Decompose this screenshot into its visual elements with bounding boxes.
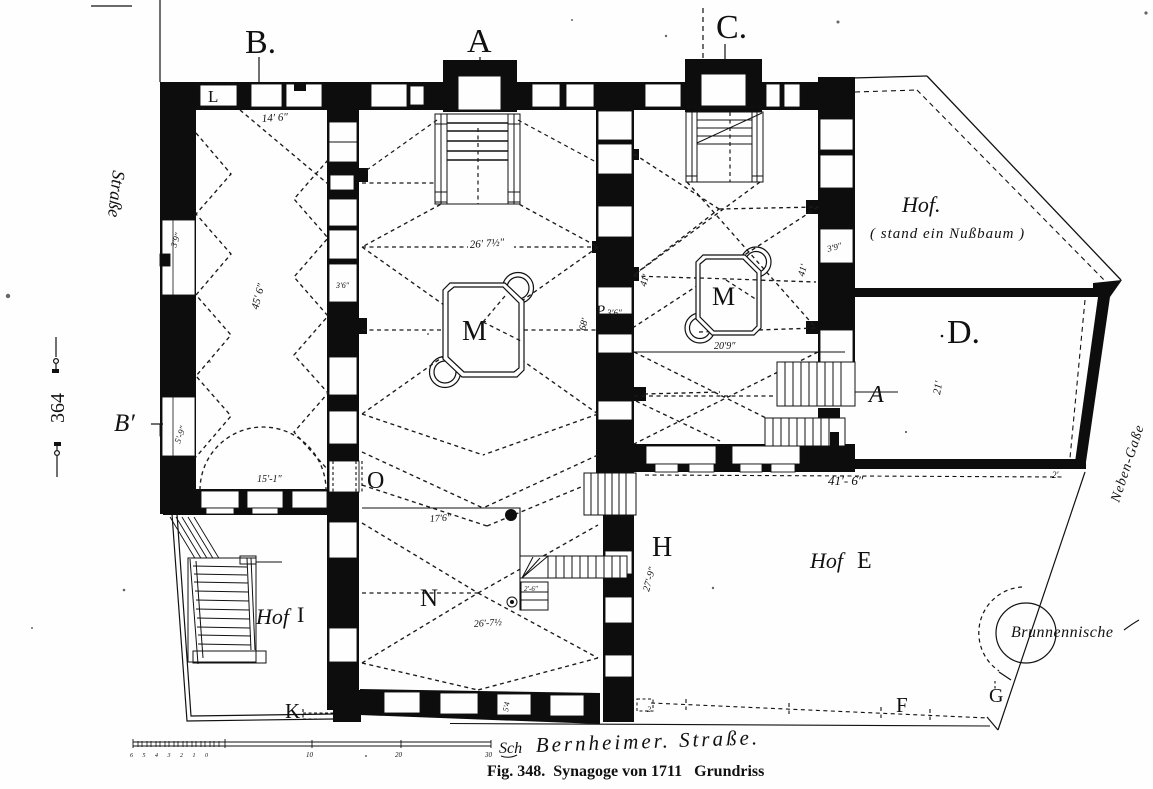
svg-text:21′: 21′ [931, 380, 945, 396]
svg-text:364: 364 [47, 393, 69, 423]
svg-text:26′-7½: 26′-7½ [473, 617, 502, 630]
svg-text:20: 20 [395, 751, 403, 759]
svg-text:A: A [867, 382, 884, 408]
svg-text:30: 30 [484, 751, 493, 759]
svg-text:5′4: 5′4 [501, 701, 512, 712]
svg-text:D.: D. [947, 314, 980, 351]
svg-text:O: O [367, 468, 384, 494]
svg-text:26′ 7½″: 26′ 7½″ [469, 237, 505, 251]
svg-text:N: N [420, 585, 438, 612]
svg-text:Hof: Hof [255, 604, 292, 629]
svg-text:A: A [467, 23, 492, 60]
svg-text:Hof.: Hof. [901, 192, 941, 217]
svg-text:Fig. 348. Synagoge von 1711: Fig. 348. Synagoge von 1711 Grundriss [487, 763, 764, 780]
svg-text:G: G [989, 685, 1003, 707]
svg-text:E: E [857, 548, 872, 574]
svg-text:3′6″: 3′6″ [606, 308, 622, 318]
svg-text:H: H [652, 532, 672, 563]
svg-text:Brunnennische: Brunnennische [1011, 624, 1113, 641]
svg-text:B′: B′ [114, 410, 135, 437]
svg-text:I: I [297, 602, 304, 627]
svg-text:C.: C. [716, 9, 747, 46]
svg-text:20′9″: 20′9″ [714, 341, 736, 352]
svg-text:2′-6″: 2′-6″ [524, 585, 538, 593]
svg-text:L: L [208, 87, 218, 106]
svg-text:41′- 6″: 41′- 6″ [828, 473, 864, 488]
svg-text:17′6″: 17′6″ [429, 512, 452, 525]
svg-text:M: M [712, 282, 735, 311]
svg-text:2: 2 [647, 705, 651, 714]
svg-text:2′: 2′ [1052, 470, 1060, 480]
svg-text:3′6″: 3′6″ [335, 281, 350, 290]
svg-text:Sch: Sch [499, 740, 522, 757]
svg-text:K: K [285, 699, 300, 723]
svg-text:10: 10 [306, 751, 314, 759]
svg-text:14′ 6″: 14′ 6″ [261, 111, 288, 125]
svg-text:15′-1″: 15′-1″ [257, 474, 283, 485]
svg-text:6 5 4 3 2 1 0: 6 5 4 3 2 1 0 [130, 752, 212, 759]
svg-text:F: F [896, 693, 908, 717]
svg-text:B.: B. [245, 24, 276, 61]
svg-text:( stand ein Nußbaum ): ( stand ein Nußbaum ) [870, 226, 1025, 242]
svg-text:M: M [462, 316, 487, 347]
svg-text:Hof: Hof [809, 548, 846, 573]
